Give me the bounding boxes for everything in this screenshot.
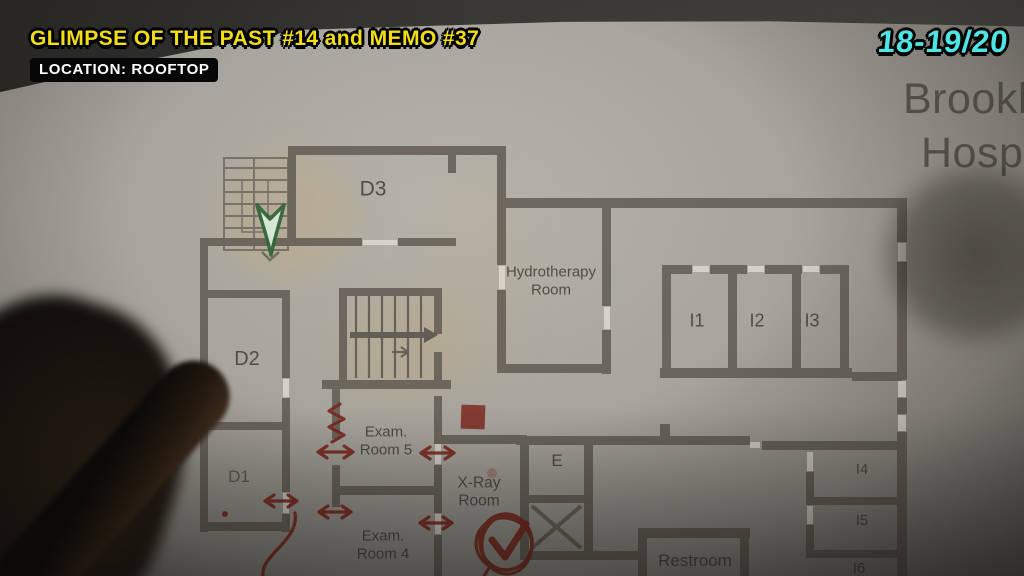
hud-title: GLIMPSE OF THE PAST #14 and MEMO #37 [30,26,479,51]
game-screenshot: D3 D2 D1 Hydrotherapy Room I1 I2 I3 Exam… [0,0,1024,576]
hud-collectible-counter: 18-19/20 [876,24,1010,60]
hud-location-badge: LOCATION: ROOFTOP [30,58,218,82]
